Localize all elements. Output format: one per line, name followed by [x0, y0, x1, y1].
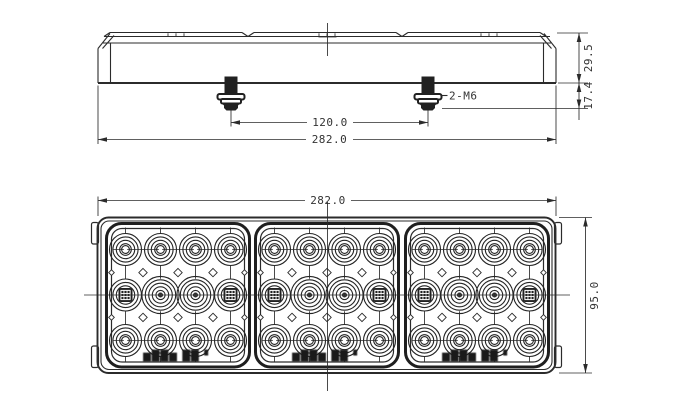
side-view: 2-M6 120.0 282.0 29.5 17.4 [98, 23, 595, 146]
bolt-callout: 2-M6 [442, 90, 478, 103]
lens-profile [103, 33, 551, 44]
technical-drawing: 2-M6 120.0 282.0 29.5 17.4 [0, 0, 673, 401]
bolt-right [415, 77, 442, 111]
drawing-canvas: 2-M6 120.0 282.0 29.5 17.4 [0, 0, 673, 401]
bolt-left [218, 77, 245, 111]
panel-stamp: ▆██▆ ██ ▘ [142, 349, 213, 362]
dim-17-4-label: 17.4 [582, 81, 595, 110]
dimension-overall-width-front: 282.0 [98, 194, 556, 216]
panel-stamp: ▆██▆ ██ ▘ [291, 349, 362, 362]
side-view-centerline [319, 23, 337, 56]
dim-282-front-label: 282.0 [310, 194, 346, 207]
dimension-height-stack: 29.5 17.4 [442, 33, 595, 120]
dim-29-5-label: 29.5 [582, 44, 595, 73]
front-centerlines [84, 202, 570, 391]
dim-282-side-label: 282.0 [312, 133, 348, 146]
panel-stamp: ▆██▆ ██ ▘ [441, 349, 512, 362]
dimension-bolt-spacing: 120.0 [231, 111, 428, 130]
dim-95-label: 95.0 [588, 281, 601, 310]
front-view: 282.0 ▆██▆ ██ ▘▆██▆ ██ ▘▆██▆ ██ ▘ 95.0 [84, 194, 601, 391]
housing-profile [98, 34, 556, 84]
bolt-spec-label: 2-M6 [449, 90, 478, 103]
dim-120-label: 120.0 [312, 116, 348, 129]
